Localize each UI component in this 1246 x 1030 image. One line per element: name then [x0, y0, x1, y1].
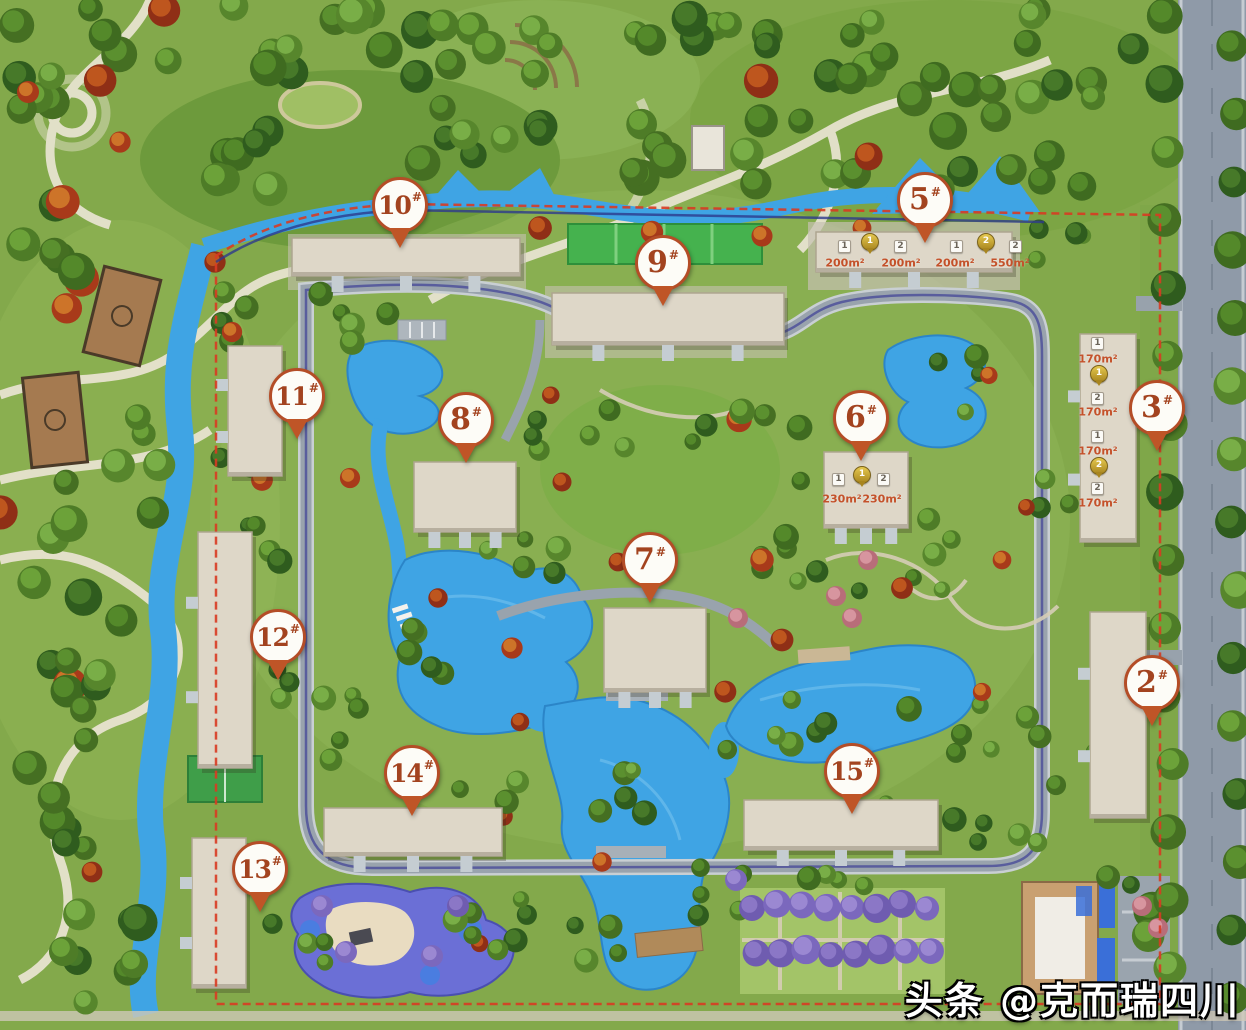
building-marker-9: 9#	[635, 235, 691, 306]
marker-number: 6	[845, 403, 866, 433]
unit-count-badge: 2	[877, 473, 890, 486]
marker-number: 10	[378, 193, 411, 218]
marker-number-suffix: #	[931, 185, 941, 199]
marker-number: 12	[256, 625, 289, 650]
building-marker-2: 2#	[1124, 655, 1180, 726]
marker-number: 15	[830, 759, 863, 784]
marker-number-suffix: #	[864, 756, 874, 770]
unit-type-pin: 1	[861, 233, 879, 251]
marker-number: 2	[1136, 668, 1157, 698]
marker-number: 3	[1141, 393, 1162, 423]
unit-area-label: 200m²	[825, 257, 864, 270]
marker-number-suffix: #	[424, 758, 434, 772]
marker-pointer	[455, 443, 477, 463]
unit-type-pin: 1	[853, 466, 871, 484]
building-marker-12: 12#	[250, 609, 306, 680]
marker-number: 13	[238, 857, 271, 882]
watermark-text: 头条 @克而瑞四川	[905, 970, 1240, 1025]
unit-area-label: 200m²	[881, 257, 920, 270]
unit-count-badge: 1	[950, 240, 963, 253]
building-marker-6: 6#	[833, 390, 889, 461]
unit-count-badge: 2	[894, 240, 907, 253]
marker-pointer	[841, 794, 863, 814]
unit-area-label: 170m²	[1078, 353, 1117, 366]
unit-type-pin: 2	[1090, 457, 1108, 475]
marker-number: 8	[450, 405, 471, 435]
unit-count-badge: 2	[1009, 240, 1022, 253]
building-marker-13: 13#	[232, 841, 288, 912]
marker-number-suffix: #	[1158, 668, 1168, 682]
marker-number: 7	[634, 545, 655, 575]
unit-count-badge: 1	[838, 240, 851, 253]
marker-pointer	[267, 660, 289, 680]
marker-number-suffix: #	[412, 190, 422, 204]
marker-pointer	[639, 583, 661, 603]
marker-pointer	[850, 441, 872, 461]
marker-number-suffix: #	[867, 403, 877, 417]
marker-pointer	[1141, 706, 1163, 726]
unit-count-badge: 1	[1091, 337, 1104, 350]
marker-pointer	[249, 892, 271, 912]
building-marker-3: 3#	[1129, 380, 1185, 451]
building-marker-5: 5#	[897, 172, 953, 243]
unit-area-label: 170m²	[1078, 497, 1117, 510]
marker-number: 11	[275, 384, 308, 409]
building-marker-10: 10#	[372, 177, 428, 248]
unit-area-label: 230m²	[862, 493, 901, 506]
marker-number-suffix: #	[472, 405, 482, 419]
marker-number: 5	[909, 185, 930, 215]
marker-pointer	[914, 223, 936, 243]
unit-area-label: 550m²	[990, 257, 1029, 270]
marker-number-suffix: #	[669, 248, 679, 262]
building-marker-11: 11#	[269, 368, 325, 439]
unit-area-label: 200m²	[935, 257, 974, 270]
marker-number: 14	[390, 761, 423, 786]
marker-number-suffix: #	[309, 381, 319, 395]
marker-number-suffix: #	[1163, 393, 1173, 407]
marker-pointer	[389, 228, 411, 248]
marker-number-suffix: #	[656, 545, 666, 559]
unit-count-badge: 2	[1091, 392, 1104, 405]
unit-area-label: 170m²	[1078, 445, 1117, 458]
labels-overlay: 10#5#9#11#8#6#3#7#12#2#14#15#13#11212220…	[0, 0, 1246, 1030]
unit-type-pin: 1	[1090, 365, 1108, 383]
marker-pointer	[286, 419, 308, 439]
unit-count-badge: 1	[1091, 430, 1104, 443]
marker-pointer	[1146, 431, 1168, 451]
unit-count-badge: 1	[832, 473, 845, 486]
building-marker-14: 14#	[384, 745, 440, 816]
unit-area-label: 230m²	[822, 493, 861, 506]
site-plan-image: 10#5#9#11#8#6#3#7#12#2#14#15#13#11212220…	[0, 0, 1246, 1030]
building-marker-15: 15#	[824, 743, 880, 814]
unit-area-label: 170m²	[1078, 406, 1117, 419]
unit-count-badge: 2	[1091, 482, 1104, 495]
unit-type-pin: 2	[977, 233, 995, 251]
marker-pointer	[652, 286, 674, 306]
marker-number-suffix: #	[272, 854, 282, 868]
marker-pointer	[401, 796, 423, 816]
building-marker-8: 8#	[438, 392, 494, 463]
building-marker-7: 7#	[622, 532, 678, 603]
marker-number-suffix: #	[290, 622, 300, 636]
marker-number: 9	[647, 248, 668, 278]
